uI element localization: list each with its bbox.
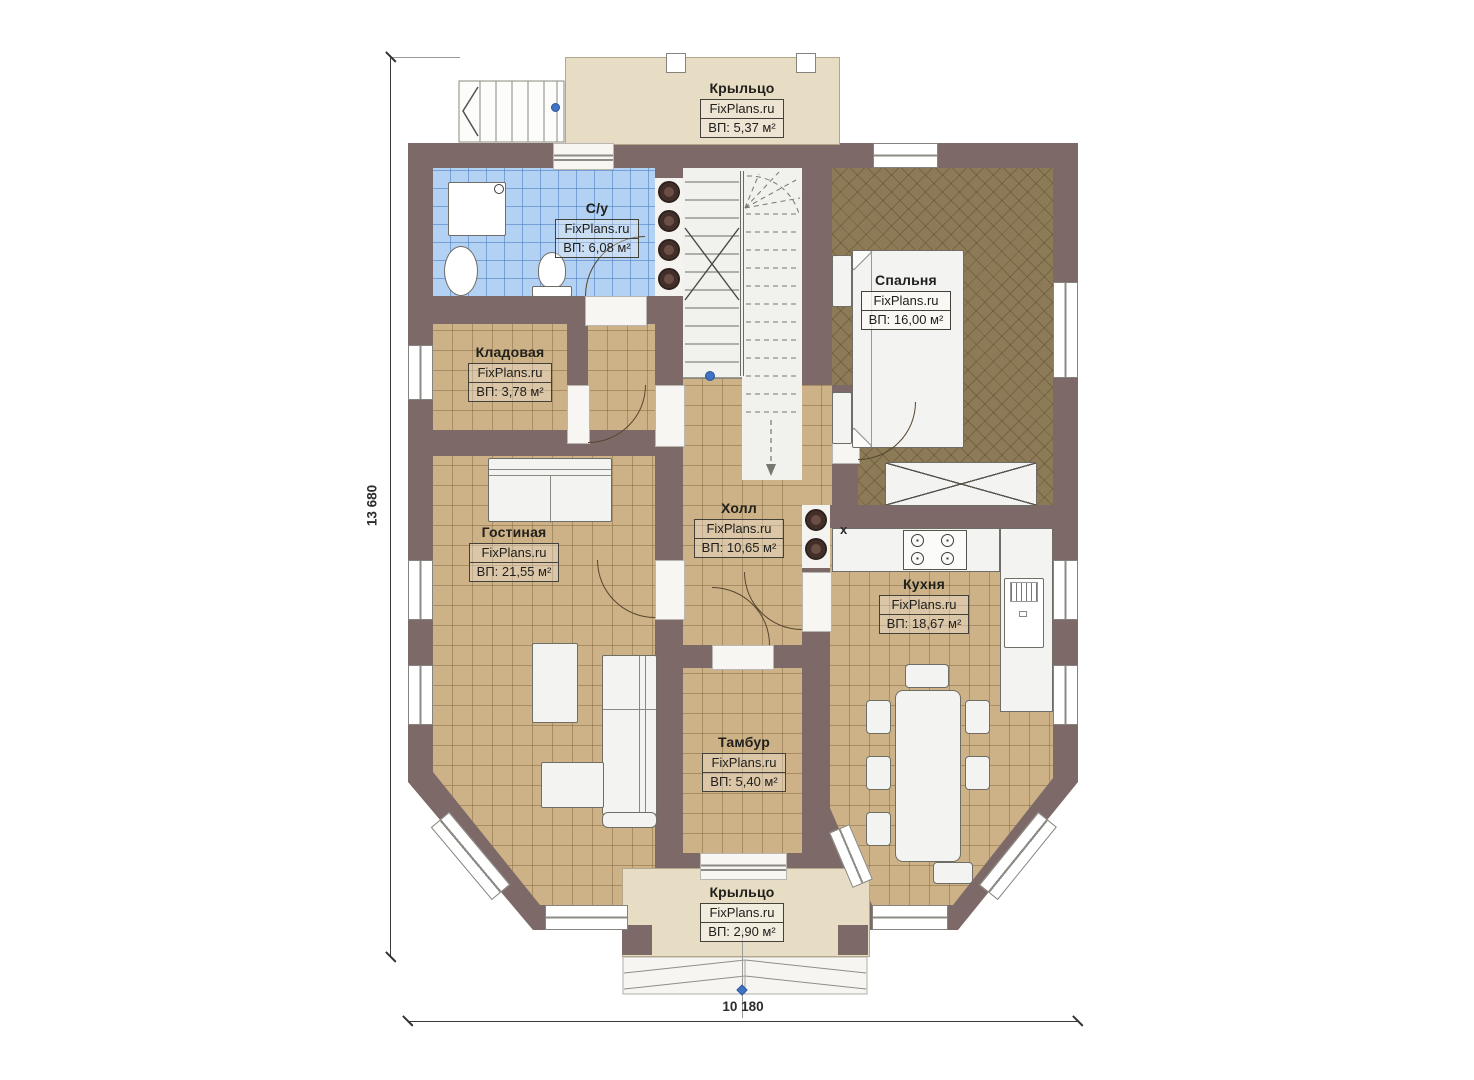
floor-plan-canvas: x [0, 0, 1474, 1080]
hall-floor-extension [802, 385, 832, 505]
bay-window [545, 905, 628, 930]
room-name: Крыльцо [657, 80, 827, 96]
room-label-storage: Кладовая FixPlans.ru ВП: 3,78 м² [425, 344, 595, 402]
bathroom-door-opening [585, 296, 647, 326]
front-door-opening [553, 143, 614, 170]
exterior-stairs-top [458, 80, 565, 143]
brand-watermark: FixPlans.ru [469, 364, 550, 382]
sofa-back-line [489, 469, 611, 470]
window [1053, 560, 1078, 620]
wardrobe [885, 462, 1037, 506]
brand-watermark: FixPlans.ru [703, 754, 784, 772]
window [1053, 282, 1078, 378]
window [1053, 665, 1078, 725]
room-info-box: FixPlans.ru ВП: 21,55 м² [469, 543, 560, 582]
room-name: Крыльцо [657, 884, 827, 900]
room-name: Тамбур [659, 734, 829, 750]
room-info-box: FixPlans.ru ВП: 5,40 м² [702, 753, 785, 792]
pillow [852, 250, 872, 270]
dimension-line-vertical [390, 57, 391, 957]
room-label-porch-top: Крыльцо FixPlans.ru ВП: 5,37 м² [657, 80, 827, 138]
brand-watermark: FixPlans.ru [701, 100, 782, 118]
sofa-back-line [639, 656, 640, 814]
bay-window [872, 905, 948, 930]
room-name: Кладовая [425, 344, 595, 360]
dining-chair [965, 700, 990, 734]
fridge-grille [1010, 582, 1038, 602]
room-label-hall: Холл FixPlans.ru ВП: 10,65 м² [654, 500, 824, 558]
brand-watermark: FixPlans.ru [701, 904, 782, 922]
room-label-kitchen: Кухня FixPlans.ru ВП: 18,67 м² [839, 576, 1009, 634]
stove-burner [911, 534, 924, 547]
dining-table [895, 690, 961, 862]
room-label-bedroom: Спальня FixPlans.ru ВП: 16,00 м² [821, 272, 991, 330]
room-info-box: FixPlans.ru ВП: 10,65 м² [694, 519, 785, 558]
brand-watermark: FixPlans.ru [880, 596, 969, 614]
boiler-x-mark: x [840, 522, 847, 537]
porch-column [796, 53, 816, 73]
room-name: Кухня [839, 576, 1009, 592]
staircase [683, 168, 802, 480]
dining-chair [965, 756, 990, 790]
vestibule-door-opening [712, 645, 774, 670]
corner-sofa-end [602, 812, 657, 828]
porch-column [666, 53, 686, 73]
dimension-line-horizontal [408, 1021, 1078, 1022]
dimension-label-width: 10 180 [693, 999, 793, 1014]
room-area: ВП: 18,67 м² [880, 614, 969, 633]
extension-line [390, 57, 460, 58]
room-info-box: FixPlans.ru ВП: 2,90 м² [700, 903, 783, 942]
room-area: ВП: 21,55 м² [470, 562, 559, 581]
interior-wall [433, 430, 683, 456]
corner-sofa-short [541, 762, 604, 808]
fridge [1004, 578, 1044, 648]
room-area: ВП: 5,40 м² [703, 772, 784, 791]
porch-column [838, 925, 868, 955]
room-area: ВП: 10,65 м² [695, 538, 784, 557]
sofa-back-line [645, 656, 646, 814]
room-info-box: FixPlans.ru ВП: 6,08 м² [555, 219, 638, 258]
window [408, 665, 433, 725]
stove-burner [941, 534, 954, 547]
room-info-box: FixPlans.ru ВП: 5,37 м² [700, 99, 783, 138]
coffee-table [532, 643, 578, 723]
room-info-box: FixPlans.ru ВП: 18,67 м² [879, 595, 970, 634]
flue-pipe [658, 268, 680, 290]
brand-watermark: FixPlans.ru [470, 544, 559, 562]
stove-burner [911, 552, 924, 565]
sink [444, 246, 478, 296]
room-label-bathroom: С/у FixPlans.ru ВП: 6,08 м² [512, 200, 682, 258]
room-label-porch-bottom: Крыльцо FixPlans.ru ВП: 2,90 м² [657, 884, 827, 942]
shower-head-icon [494, 184, 504, 194]
room-area: ВП: 3,78 м² [469, 382, 550, 401]
dining-chair [866, 756, 891, 790]
room-name: Холл [654, 500, 824, 516]
nightstand [832, 392, 852, 444]
dining-chair [905, 664, 949, 688]
corner-sofa-long [602, 655, 657, 815]
brand-watermark: FixPlans.ru [695, 520, 784, 538]
room-info-box: FixPlans.ru ВП: 3,78 м² [468, 363, 551, 402]
window [873, 143, 938, 168]
sofa-seat-divider [550, 475, 551, 523]
living-room-door-opening [655, 560, 685, 620]
room-area: ВП: 16,00 м² [862, 310, 951, 329]
fridge-handle [1019, 611, 1027, 617]
room-area: ВП: 6,08 м² [556, 238, 637, 257]
room-name: С/у [512, 200, 682, 216]
sofa-seat-divider [603, 709, 656, 710]
room-label-living-room: Гостиная FixPlans.ru ВП: 21,55 м² [429, 524, 599, 582]
stove-burner [941, 552, 954, 565]
dining-chair [933, 862, 973, 884]
brand-watermark: FixPlans.ru [862, 292, 951, 310]
marker-dot [551, 103, 560, 112]
room-area: ВП: 5,37 м² [701, 118, 782, 137]
room-name: Спальня [821, 272, 991, 288]
interior-wall [830, 505, 1053, 528]
room-label-vestibule: Тамбур FixPlans.ru ВП: 5,40 м² [659, 734, 829, 792]
corridor-opening [655, 385, 685, 447]
dining-chair [866, 812, 891, 846]
room-area: ВП: 2,90 м² [701, 922, 782, 941]
dining-chair [866, 700, 891, 734]
entrance-door-opening [700, 853, 787, 880]
brand-watermark: FixPlans.ru [556, 220, 637, 238]
toilet-tank [532, 286, 572, 297]
sofa [488, 458, 612, 522]
room-name: Гостиная [429, 524, 599, 540]
dimension-label-height: 13 680 [365, 466, 380, 546]
room-info-box: FixPlans.ru ВП: 16,00 м² [861, 291, 952, 330]
kitchen-door-opening [802, 572, 832, 632]
